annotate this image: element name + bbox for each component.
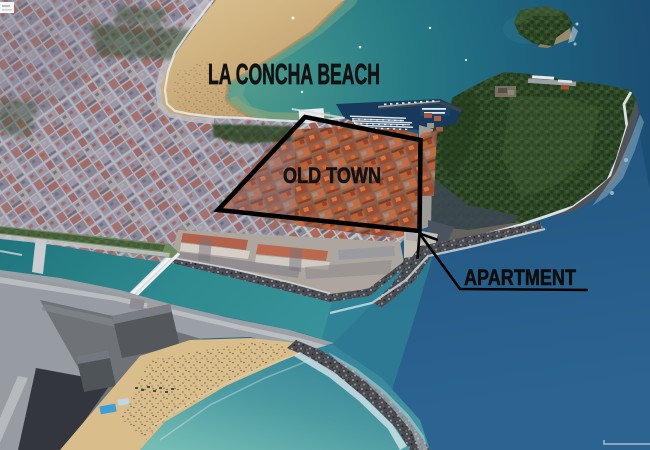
svg-text:OLD TOWN: OLD TOWN [283,163,381,188]
svg-text:APARTMENT: APARTMENT [464,265,576,290]
svg-text:LA CONCHA BEACH: LA CONCHA BEACH [208,59,380,91]
